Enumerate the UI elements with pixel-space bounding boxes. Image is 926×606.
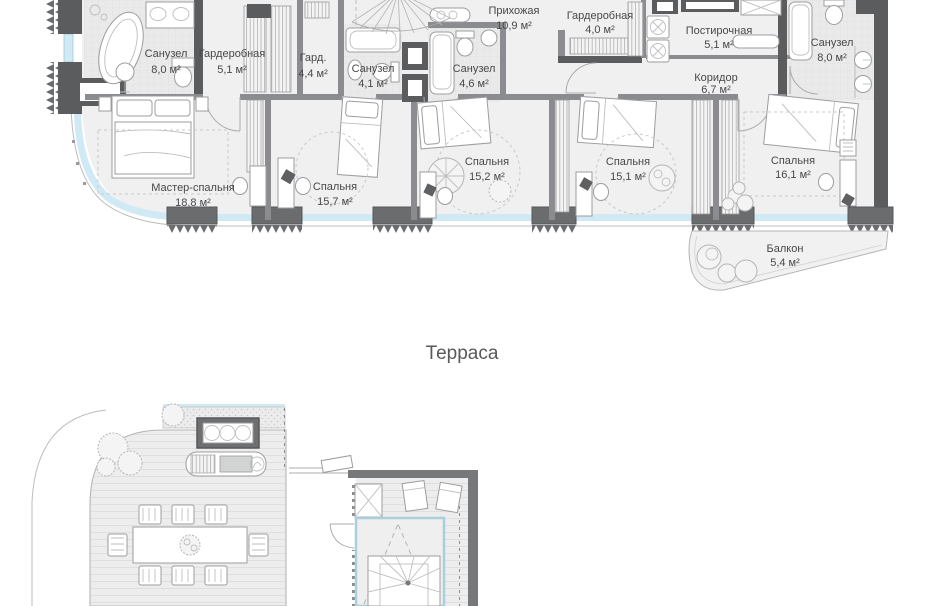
chair <box>594 184 609 201</box>
svg-text:5,1 м²: 5,1 м² <box>217 64 247 76</box>
desk <box>278 158 294 208</box>
dining-chair <box>249 534 268 556</box>
floor-plan-page: Санузел8,0 м² Гардеробная5,1 м² Гард.4,4… <box>0 0 926 606</box>
wall-hatch <box>46 0 58 34</box>
dining-chair <box>108 534 127 556</box>
master-bed <box>99 96 208 178</box>
svg-text:8,0 м²: 8,0 м² <box>151 64 181 76</box>
mullion-post <box>72 140 75 143</box>
chair <box>233 178 248 195</box>
shelf <box>840 140 856 156</box>
chair <box>296 178 311 195</box>
svg-text:Санузел: Санузел <box>453 63 496 75</box>
wardrobe-hatch <box>247 100 263 172</box>
wardrobe-hatch <box>271 6 291 92</box>
dining-chair <box>172 505 194 524</box>
floor-plan-canvas: Санузел8,0 м² Гардеробная5,1 м² Гард.4,4… <box>0 0 926 606</box>
svg-text:4,4 м²: 4,4 м² <box>298 68 328 80</box>
svg-text:Коридор: Коридор <box>694 72 737 84</box>
toilet-tank <box>456 31 474 38</box>
terrace-heading: Терраса <box>426 343 499 364</box>
outer-wall <box>58 0 82 34</box>
svg-text:Гард.: Гард. <box>300 52 327 64</box>
svg-text:Санузел: Санузел <box>352 63 395 75</box>
svg-text:15,1 м²: 15,1 м² <box>610 171 646 183</box>
chair <box>819 174 834 191</box>
winder-stair <box>368 556 440 606</box>
railing-posts <box>284 408 289 470</box>
mullion-post <box>76 162 79 165</box>
svg-text:8,0 м²: 8,0 м² <box>817 52 847 64</box>
dining-chair <box>139 505 161 524</box>
outdoor-kitchen <box>186 452 266 476</box>
svg-text:Прихожая: Прихожая <box>489 5 540 17</box>
svg-text:Спальня: Спальня <box>771 155 815 167</box>
glazing-line <box>163 404 285 407</box>
wardrobe-pier <box>247 4 271 18</box>
table-plant <box>180 535 200 555</box>
toilet <box>826 6 843 25</box>
svg-text:5,4 м²: 5,4 м² <box>770 257 800 269</box>
sink <box>481 30 497 46</box>
nightstand <box>196 97 208 111</box>
stair-block <box>330 470 478 606</box>
svg-text:Спальня: Спальня <box>465 156 509 168</box>
door-leaf <box>321 455 353 472</box>
desk <box>250 166 266 206</box>
svg-text:15,2 м²: 15,2 м² <box>469 171 505 183</box>
svg-text:10,9 м²: 10,9 м² <box>496 20 532 32</box>
bbq-grill <box>197 418 259 448</box>
svg-text:Балкон: Балкон <box>767 243 804 255</box>
svg-text:4,0 м²: 4,0 м² <box>585 24 615 36</box>
balcony-plant <box>735 260 757 282</box>
svg-text:18,8 м²: 18,8 м² <box>175 197 211 209</box>
apartment-plan: Санузел8,0 м² Гардеробная5,1 м² Гард.4,4… <box>46 0 893 290</box>
dining-chair <box>172 566 194 585</box>
svg-text:6,7 м²: 6,7 м² <box>701 84 731 96</box>
nightstand <box>99 97 111 111</box>
svg-text:Мастер-спальня: Мастер-спальня <box>151 182 235 194</box>
chair <box>438 188 453 205</box>
outer-wall <box>856 0 876 14</box>
wall-hatch <box>46 62 58 114</box>
wardrobe-hatch <box>305 2 329 18</box>
lounge-chair <box>436 482 462 512</box>
svg-text:Санузел: Санузел <box>145 48 188 60</box>
dining-chair <box>205 566 227 585</box>
wardrobe-hatch <box>555 100 569 212</box>
vanity-counter <box>430 8 470 22</box>
block-wall <box>348 470 478 478</box>
dining-chair <box>139 566 161 585</box>
vanity-counter <box>146 2 194 28</box>
terrace-plan <box>32 404 478 606</box>
svg-text:15,7 м²: 15,7 м² <box>317 196 353 208</box>
wardrobe-hatch <box>570 38 628 54</box>
lounge-chair <box>402 481 428 512</box>
svg-text:Спальня: Спальня <box>606 156 650 168</box>
svg-text:16,1 м²: 16,1 м² <box>775 169 811 181</box>
svg-text:5,1 м²: 5,1 м² <box>704 39 734 51</box>
dining-chair <box>205 505 227 524</box>
svg-text:4,6 м²: 4,6 м² <box>459 78 489 90</box>
svg-text:Постирочная: Постирочная <box>686 25 753 37</box>
window-glass <box>64 34 73 62</box>
desk <box>420 172 436 218</box>
mullion-post <box>83 182 86 185</box>
plant <box>649 165 675 191</box>
enclosure-door <box>330 524 354 548</box>
wardrobe-hatch <box>692 100 710 214</box>
plant <box>489 180 511 202</box>
svg-text:Гардеробная: Гардеробная <box>199 48 266 60</box>
svg-text:Санузел: Санузел <box>811 37 854 49</box>
svg-text:Спальня: Спальня <box>313 181 357 193</box>
balcony-plant <box>718 264 736 282</box>
svg-text:Гардеробная: Гардеробная <box>567 10 634 22</box>
toilet <box>457 38 473 56</box>
svg-text:4,1 м²: 4,1 м² <box>358 78 388 90</box>
block-wall <box>468 470 478 606</box>
outer-wall-right <box>874 0 888 221</box>
pedestal-sink <box>116 63 134 81</box>
